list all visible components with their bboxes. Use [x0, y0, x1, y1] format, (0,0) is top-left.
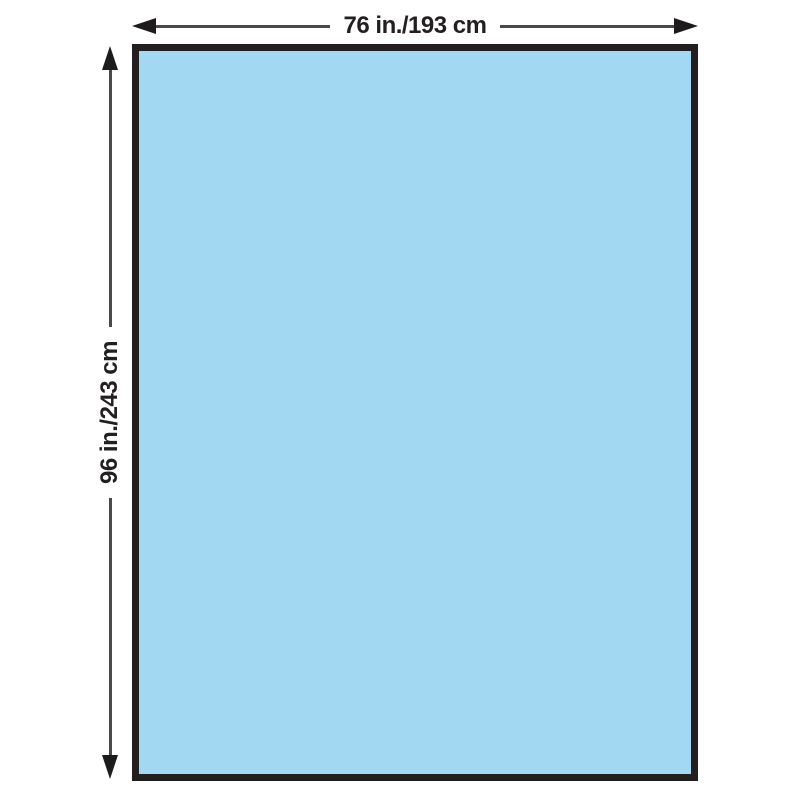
width-dimension-label: 76 in./193 cm: [330, 14, 501, 38]
dimension-line-top-segment: [109, 70, 112, 327]
arrow-down-icon: [102, 755, 118, 779]
dimension-diagram: 76 in./193 cm 96 in./243 cm: [0, 0, 800, 800]
dimension-line-left-segment: [156, 25, 330, 28]
drape-rectangle: [132, 44, 698, 781]
height-dimension-label: 96 in./243 cm: [98, 327, 122, 498]
arrow-right-icon: [674, 18, 698, 34]
dimension-line-right-segment: [500, 25, 674, 28]
height-dimension: 96 in./243 cm: [96, 46, 124, 779]
dimension-line-bottom-segment: [109, 498, 112, 755]
arrow-left-icon: [132, 18, 156, 34]
arrow-up-icon: [102, 46, 118, 70]
width-dimension: 76 in./193 cm: [132, 12, 698, 40]
